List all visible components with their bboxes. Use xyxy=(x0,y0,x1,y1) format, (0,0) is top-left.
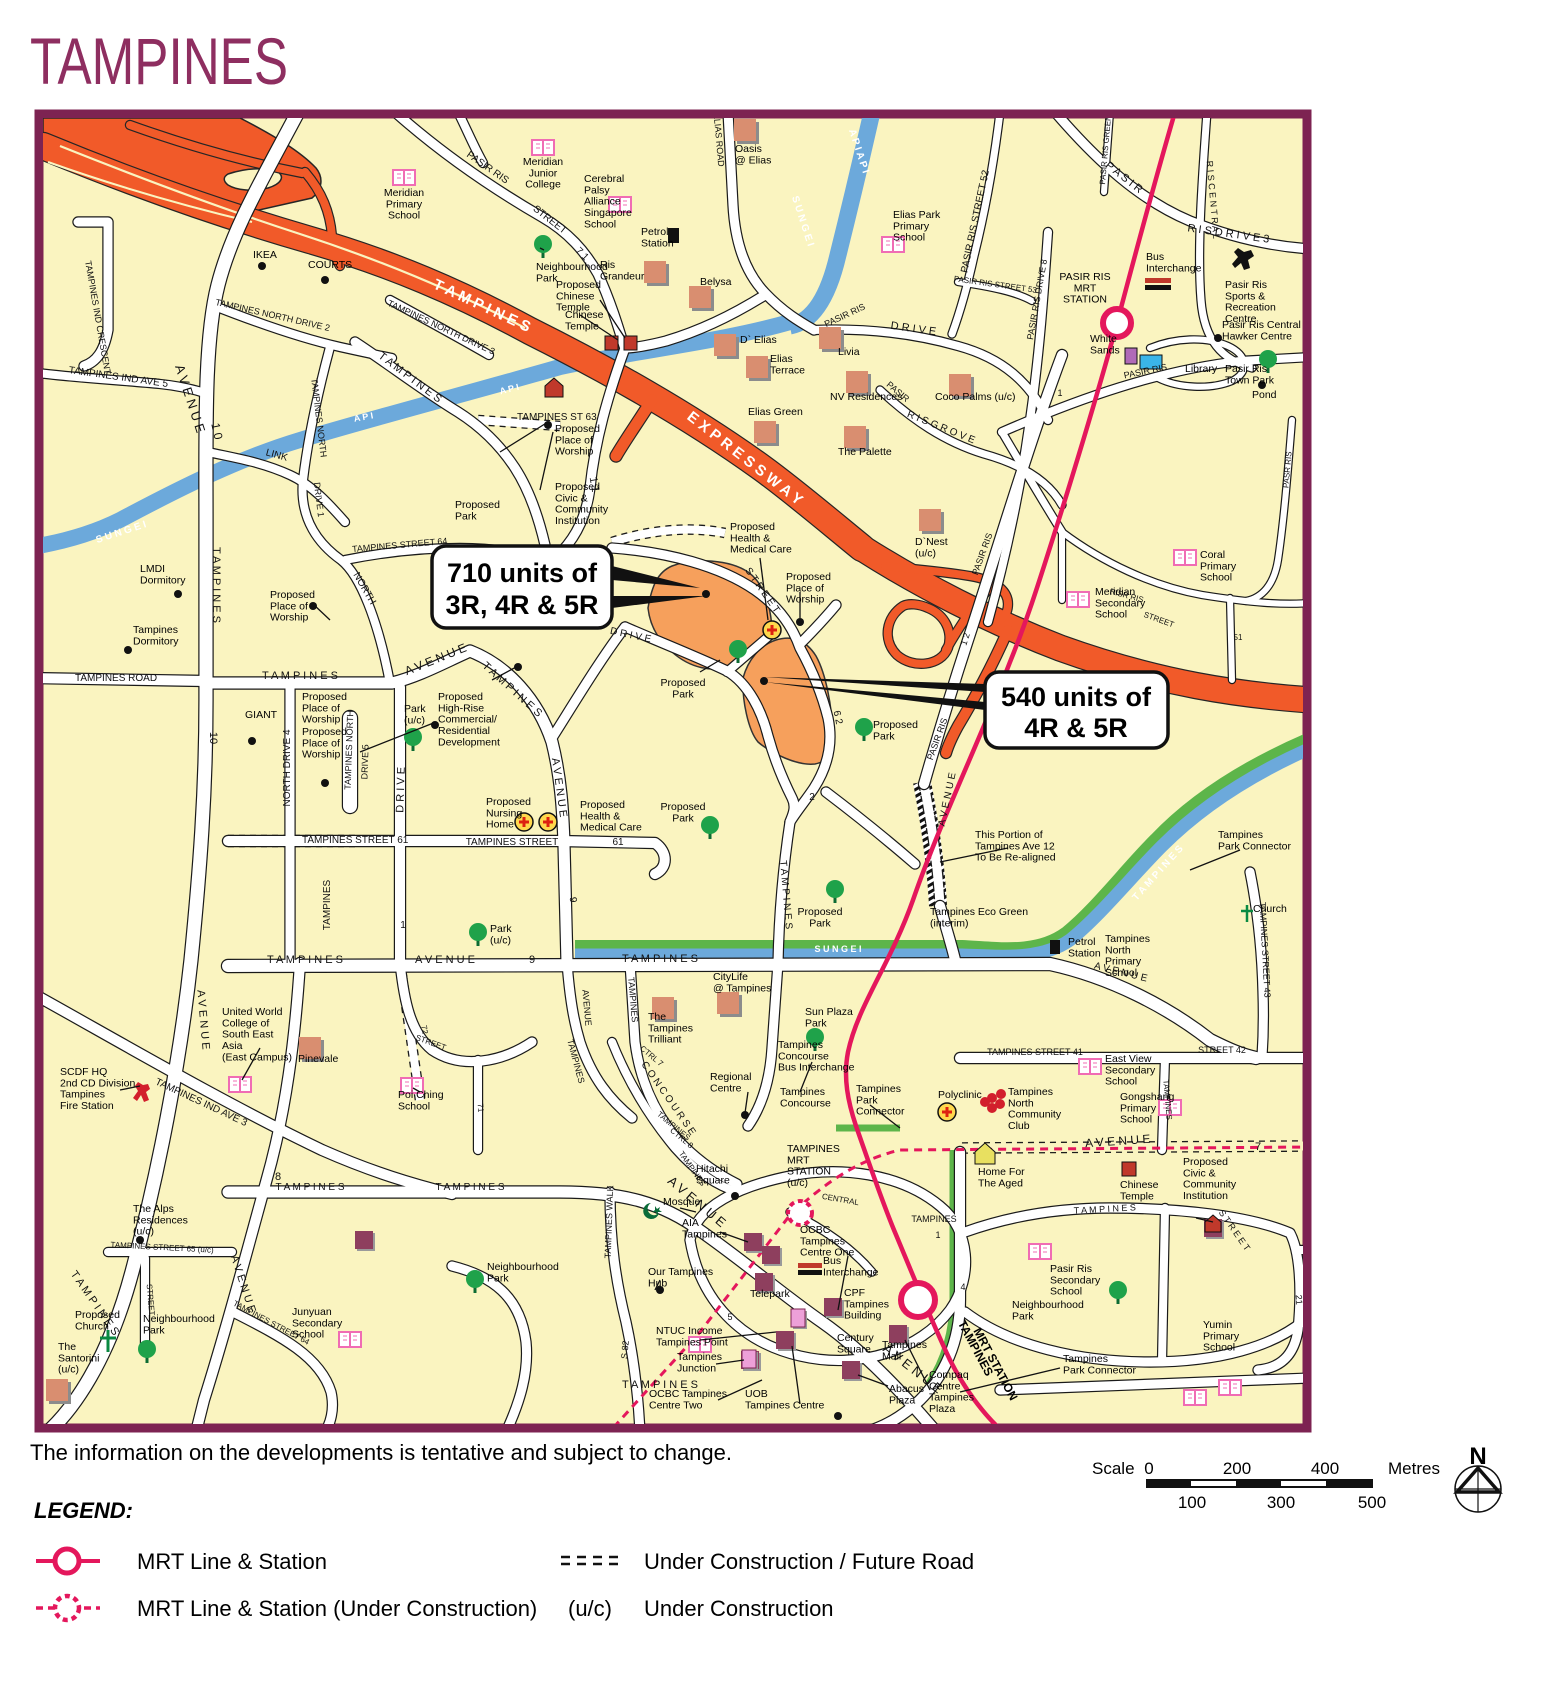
svg-text:D R I V E: D R I V E xyxy=(394,767,408,813)
svg-text:TAMPINES: TAMPINES xyxy=(30,24,288,98)
svg-text:Library: Library xyxy=(1185,363,1218,375)
svg-text:Pasir Ris CentralHawker Centre: Pasir Ris CentralHawker Centre xyxy=(1222,319,1301,342)
svg-text:TAMPINES STREET 41: TAMPINES STREET 41 xyxy=(987,1047,1083,1057)
svg-text:(u/c): (u/c) xyxy=(568,1596,612,1621)
svg-text:NTUC IncomeTampines Point: NTUC IncomeTampines Point xyxy=(656,1325,728,1348)
svg-text:T A M P I N E S: T A M P I N E S xyxy=(622,953,698,965)
svg-text:NORTH DRIVE 4: NORTH DRIVE 4 xyxy=(282,729,293,806)
svg-text:NV Residences: NV Residences xyxy=(830,391,902,403)
svg-text:ChineseTemple: ChineseTemple xyxy=(565,309,604,332)
svg-text:300: 300 xyxy=(1267,1493,1295,1512)
svg-text:S U N G E I: S U N G E I xyxy=(814,944,861,954)
svg-text:Polyclinic: Polyclinic xyxy=(938,1089,982,1101)
svg-text:Park(u/c): Park(u/c) xyxy=(404,703,426,726)
svg-text:TampinesDormitory: TampinesDormitory xyxy=(133,624,179,647)
svg-text:Under Construction / Future Ro: Under Construction / Future Road xyxy=(644,1549,974,1574)
svg-text:MeridianJuniorCollege: MeridianJuniorCollege xyxy=(523,156,563,191)
svg-text:TampinesJunction: TampinesJunction xyxy=(677,1351,722,1374)
svg-text:Pinevale: Pinevale xyxy=(298,1053,338,1065)
svg-text:MRT Line & Station (Under Cons: MRT Line & Station (Under Construction) xyxy=(137,1596,537,1621)
svg-text:TAMPINES STREET: TAMPINES STREET xyxy=(466,837,559,848)
svg-text:The information on the develop: The information on the developments is t… xyxy=(30,1440,732,1465)
svg-text:The Palette: The Palette xyxy=(838,446,892,458)
svg-text:540 units of: 540 units of xyxy=(1001,682,1152,712)
svg-text:D` Elias: D` Elias xyxy=(740,334,777,346)
svg-text:400: 400 xyxy=(1311,1459,1339,1478)
svg-text:500: 500 xyxy=(1358,1493,1386,1512)
svg-text:T A M P I N E S: T A M P I N E S xyxy=(267,954,343,966)
svg-text:71: 71 xyxy=(476,1103,486,1113)
svg-text:T A M P I N E S: T A M P I N E S xyxy=(435,1182,504,1193)
svg-text:COURTS: COURTS xyxy=(308,259,352,271)
svg-text:4: 4 xyxy=(960,1282,965,1292)
svg-text:Livia: Livia xyxy=(838,346,860,358)
svg-text:1: 1 xyxy=(1057,388,1062,398)
svg-text:Park(u/c): Park(u/c) xyxy=(490,923,512,946)
svg-text:100: 100 xyxy=(1178,1493,1206,1512)
svg-text:5: 5 xyxy=(727,1312,732,1322)
svg-text:DRIVE 5: DRIVE 5 xyxy=(359,744,370,779)
svg-text:GIANT: GIANT xyxy=(245,709,278,721)
svg-text:Pond: Pond xyxy=(1252,389,1277,401)
svg-text:Scale: Scale xyxy=(1092,1459,1135,1478)
svg-text:9: 9 xyxy=(529,954,535,966)
svg-text:TAMPINES STREET 61: TAMPINES STREET 61 xyxy=(302,835,409,846)
svg-text:61: 61 xyxy=(612,837,624,848)
svg-text:LEGEND:: LEGEND: xyxy=(34,1498,133,1523)
svg-text:Under Construction: Under Construction xyxy=(644,1596,834,1621)
svg-text:TAMPINES: TAMPINES xyxy=(322,879,333,930)
svg-text:Mosque: Mosque xyxy=(663,1196,701,1208)
svg-text:ChineseTemple: ChineseTemple xyxy=(1120,1179,1159,1202)
svg-text:7: 7 xyxy=(1255,1141,1261,1153)
svg-text:IKEA: IKEA xyxy=(253,249,277,261)
svg-text:1: 1 xyxy=(400,920,406,931)
svg-text:WhiteSands: WhiteSands xyxy=(1090,333,1120,356)
svg-text:51: 51 xyxy=(1234,633,1243,642)
svg-text:200: 200 xyxy=(1223,1459,1251,1478)
svg-text:Coco Palms (u/c): Coco Palms (u/c) xyxy=(935,391,1016,403)
svg-text:TAMPINES: TAMPINES xyxy=(911,1214,956,1224)
svg-text:3R, 4R & 5R: 3R, 4R & 5R xyxy=(445,590,598,620)
svg-text:Elias Green: Elias Green xyxy=(748,406,803,418)
svg-text:MRT Line & Station: MRT Line & Station xyxy=(137,1549,327,1574)
svg-text:T A M P I N E S: T A M P I N E S xyxy=(275,1182,344,1193)
svg-text:TampinesConcourse: TampinesConcourse xyxy=(780,1086,831,1109)
svg-text:Church: Church xyxy=(1253,903,1287,915)
svg-text:4R & 5R: 4R & 5R xyxy=(1024,713,1128,743)
svg-text:T A M P I N E S: T A M P I N E S xyxy=(262,670,338,682)
svg-text:CenturySquare: CenturySquare xyxy=(837,1332,875,1355)
svg-text:TAMPINES ST 63: TAMPINES ST 63 xyxy=(517,412,597,423)
svg-text:T A M P I N E S: T A M P I N E S xyxy=(210,547,222,623)
svg-text:10: 10 xyxy=(207,732,219,744)
svg-text:2: 2 xyxy=(809,792,815,803)
svg-text:Home ForThe Aged: Home ForThe Aged xyxy=(978,1166,1025,1189)
svg-text:710 units of: 710 units of xyxy=(447,558,598,588)
svg-text:1: 1 xyxy=(935,1230,940,1240)
svg-text:Metres: Metres xyxy=(1388,1459,1440,1478)
svg-text:A V E N U E: A V E N U E xyxy=(415,954,475,966)
svg-text:HitachiSquare: HitachiSquare xyxy=(696,1163,730,1186)
svg-text:Telepark: Telepark xyxy=(750,1288,790,1300)
svg-text:MeridianPrimarySchool: MeridianPrimarySchool xyxy=(384,187,424,222)
svg-text:21: 21 xyxy=(1294,1294,1305,1305)
svg-text:S 82: S 82 xyxy=(619,1340,631,1359)
svg-text:Belysa: Belysa xyxy=(700,276,732,288)
svg-text:TAMPINES ROAD: TAMPINES ROAD xyxy=(75,673,157,684)
svg-text:0: 0 xyxy=(1144,1459,1153,1478)
svg-text:STREET 42: STREET 42 xyxy=(1198,1045,1246,1055)
